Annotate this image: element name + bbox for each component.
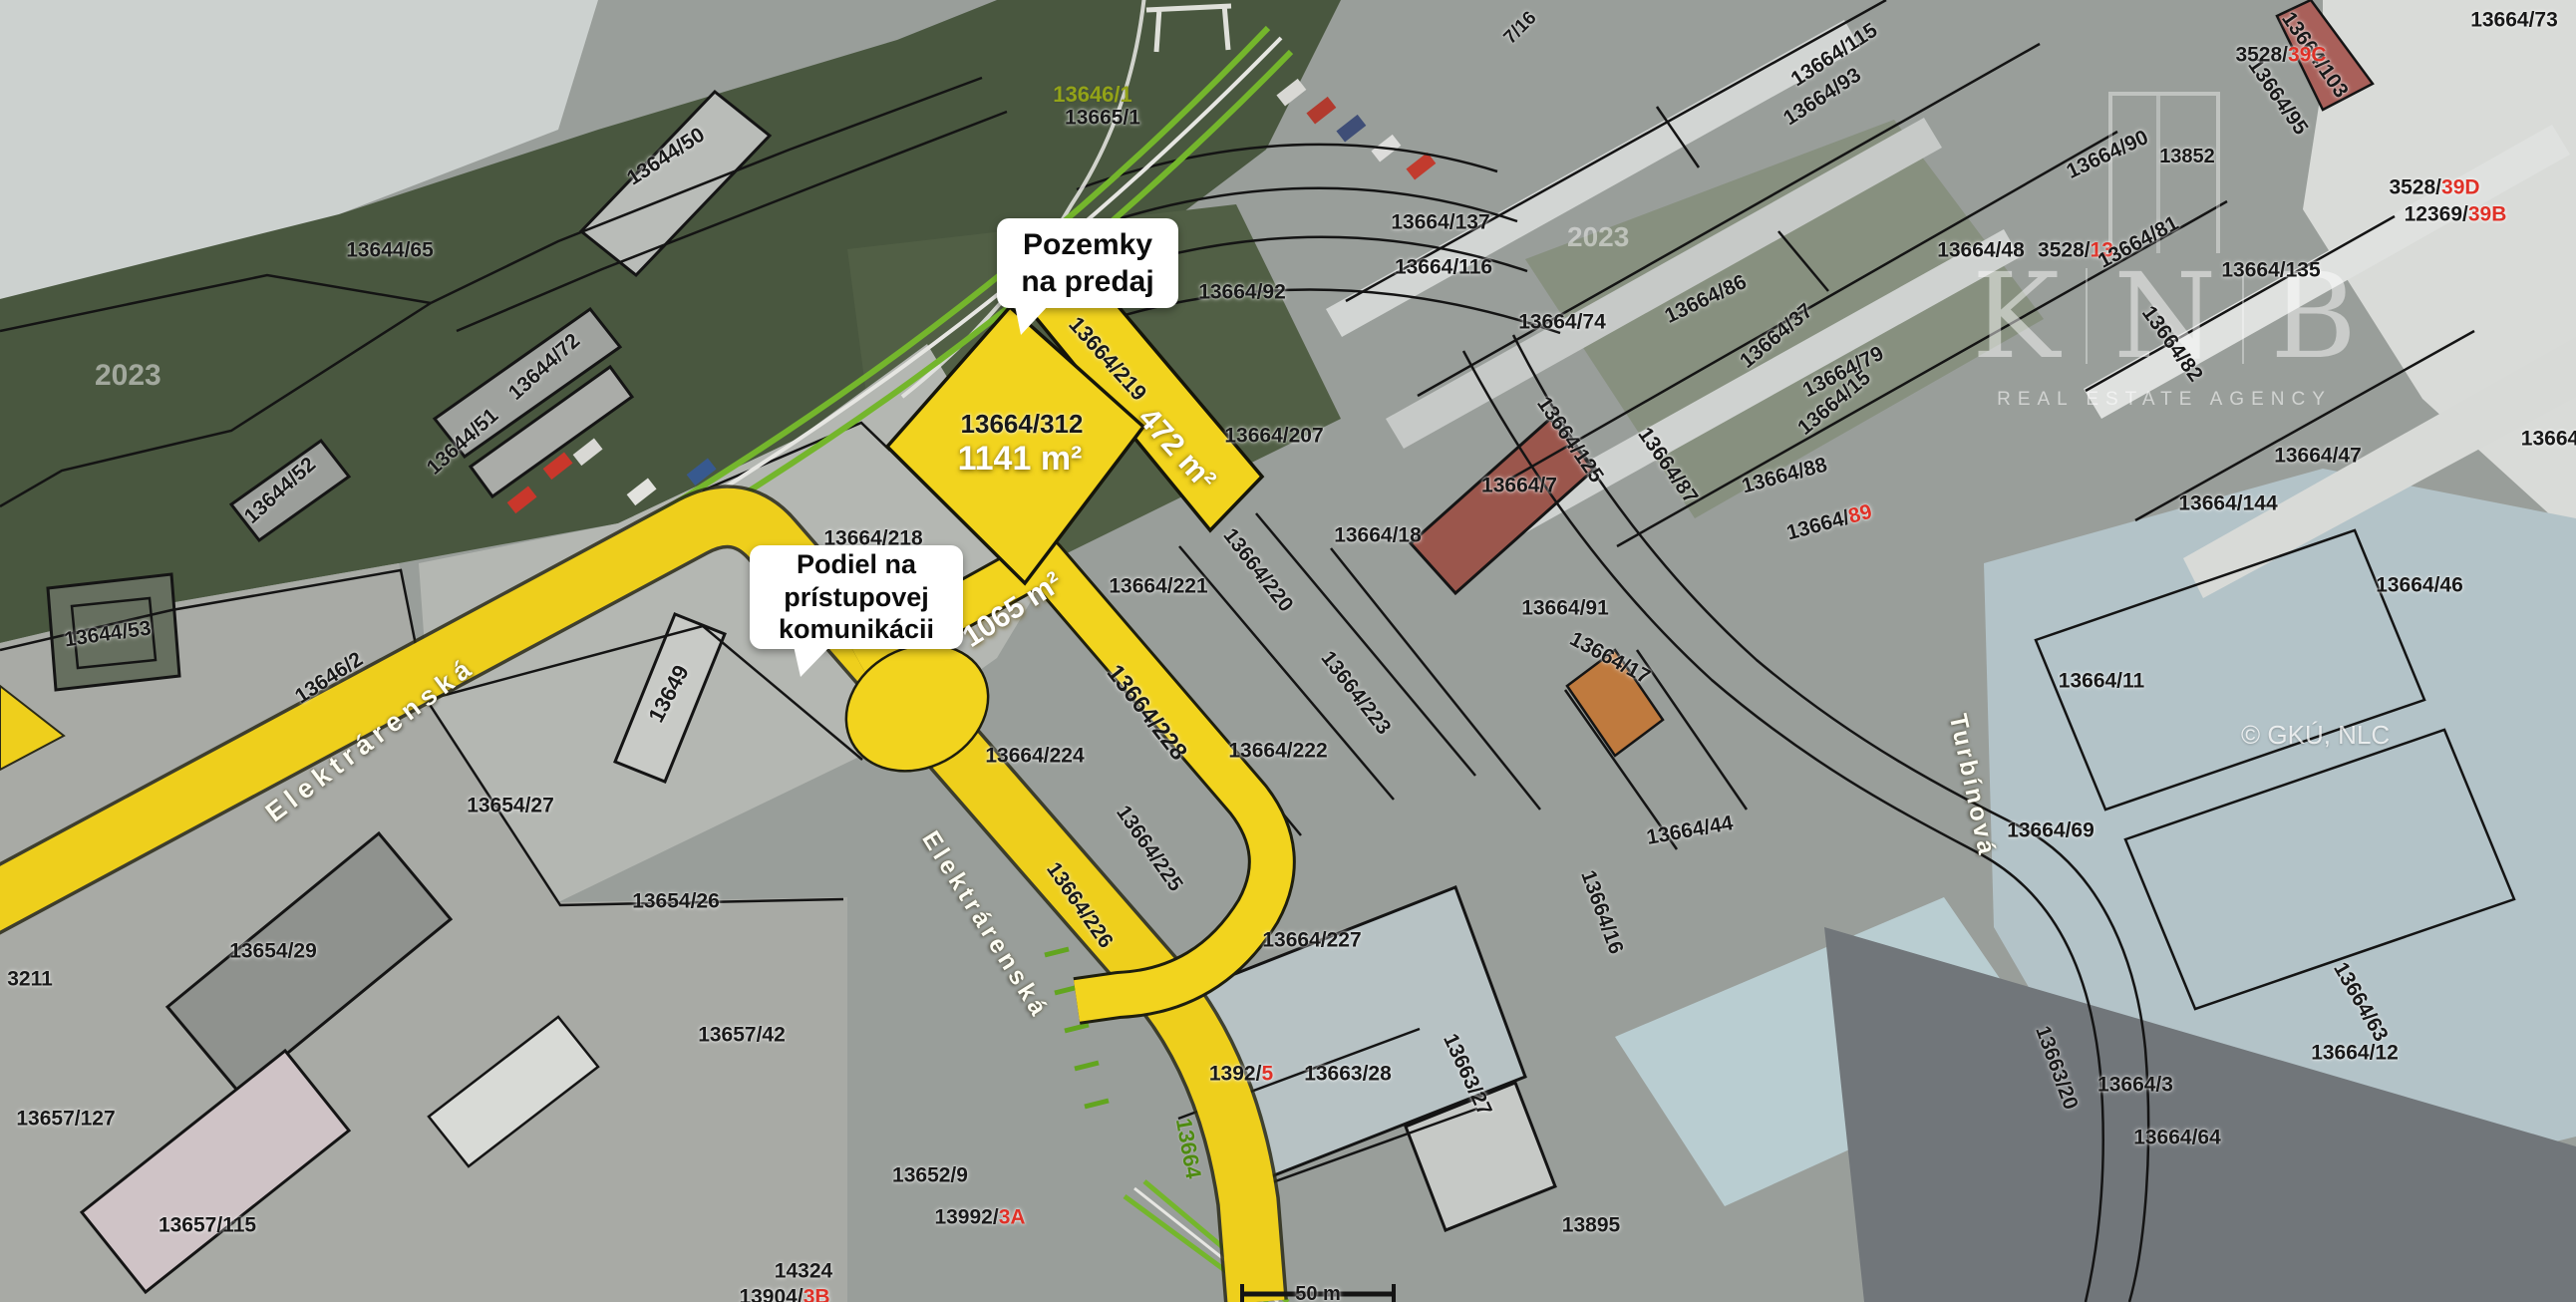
callout-pointer bbox=[794, 646, 830, 677]
callout-line: Pozemky bbox=[1023, 226, 1152, 264]
callout-line: Podiel na bbox=[797, 548, 916, 581]
callout-line: prístupovej bbox=[784, 581, 929, 614]
callout-access-road-share: Podiel na prístupovej komunikácii bbox=[750, 545, 963, 649]
callout-pointer bbox=[1015, 305, 1049, 335]
callout-line: komunikácii bbox=[779, 613, 934, 646]
callout-plots-for-sale: Pozemky na predaj bbox=[997, 218, 1178, 308]
cadastral-map: 2023 2023 K N B REAL ESTATE AGENCY © GKÚ… bbox=[0, 0, 2576, 1302]
callout-line: na predaj bbox=[1021, 263, 1153, 301]
